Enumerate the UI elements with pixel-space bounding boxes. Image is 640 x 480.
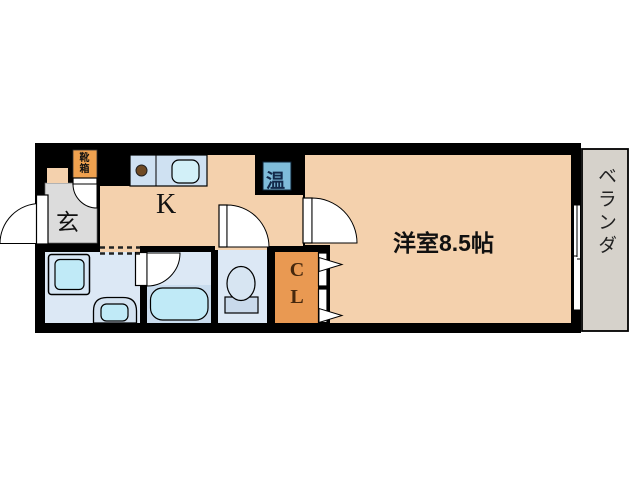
- floor-plan-image: 玄 K 温 靴箱 洋室8.5帖 CL ベランダ: [0, 0, 640, 480]
- kitchen-sink: [172, 160, 199, 183]
- toilet-bowl: [227, 267, 255, 301]
- bathroom-door-leaf: [136, 253, 148, 286]
- water-heater-label: 温: [266, 166, 285, 193]
- toilet-door-leaf: [219, 205, 227, 247]
- veranda-label: ベランダ: [592, 166, 619, 258]
- front-door-leaf: [37, 195, 49, 244]
- main-room-label: 洋室8.5帖: [393, 224, 494, 258]
- floor-plan-drawing: [0, 0, 640, 480]
- kitchen-floor-right-of-counter: [207, 155, 255, 186]
- entrance-label: 玄: [56, 203, 79, 237]
- bathtub: [151, 288, 209, 320]
- vanity-sink-bowl: [101, 304, 128, 321]
- stove-burner-icon: [136, 165, 147, 176]
- closet-label: CL: [285, 259, 308, 313]
- kitchen-label: K: [156, 189, 176, 221]
- front-door-swing: [0, 204, 40, 244]
- shoe-box-label: 靴箱: [77, 152, 88, 174]
- entrance-upper-floor: [47, 168, 68, 183]
- washing-machine: [55, 260, 84, 290]
- main-room-door-leaf: [303, 198, 312, 243]
